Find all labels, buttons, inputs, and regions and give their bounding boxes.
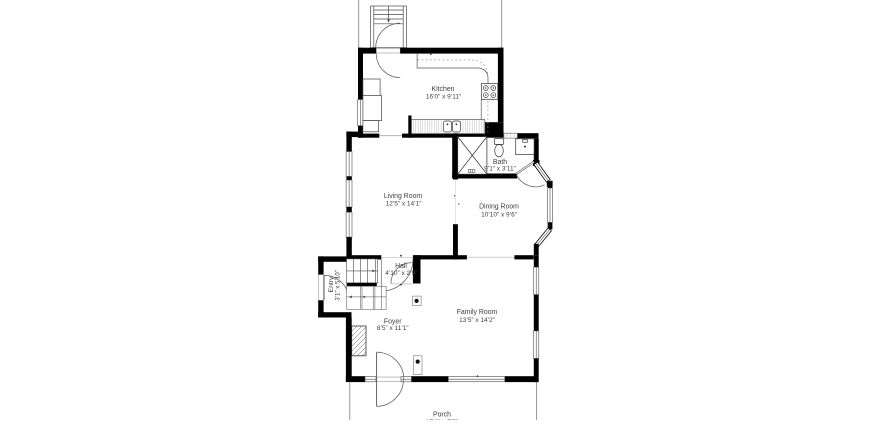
svg-text:Dining Room: Dining Room bbox=[479, 203, 519, 210]
svg-text:13’5” x 14’2”: 13’5” x 14’2” bbox=[459, 317, 495, 324]
svg-text:12’5” x 14’1”: 12’5” x 14’1” bbox=[386, 201, 422, 208]
svg-text:Kitchen: Kitchen bbox=[432, 86, 455, 93]
svg-text:16’0” x 9’11”: 16’0” x 9’11” bbox=[426, 94, 461, 101]
svg-text:8’5” x 11’1”: 8’5” x 11’1” bbox=[377, 325, 409, 332]
svg-text:Hall: Hall bbox=[395, 263, 407, 270]
svg-text:9’1” x 3’11”: 9’1” x 3’11” bbox=[484, 166, 516, 173]
svg-text:Family Room: Family Room bbox=[457, 309, 498, 316]
svg-text:3’1” x 5’10”: 3’1” x 5’10” bbox=[335, 270, 342, 301]
svg-text:Living Room: Living Room bbox=[384, 193, 423, 200]
svg-text:Porch: Porch bbox=[433, 411, 451, 418]
svg-text:10’10” x 9’6”: 10’10” x 9’6” bbox=[481, 211, 517, 218]
svg-text:4’10” x 2’9”: 4’10” x 2’9” bbox=[385, 270, 417, 277]
